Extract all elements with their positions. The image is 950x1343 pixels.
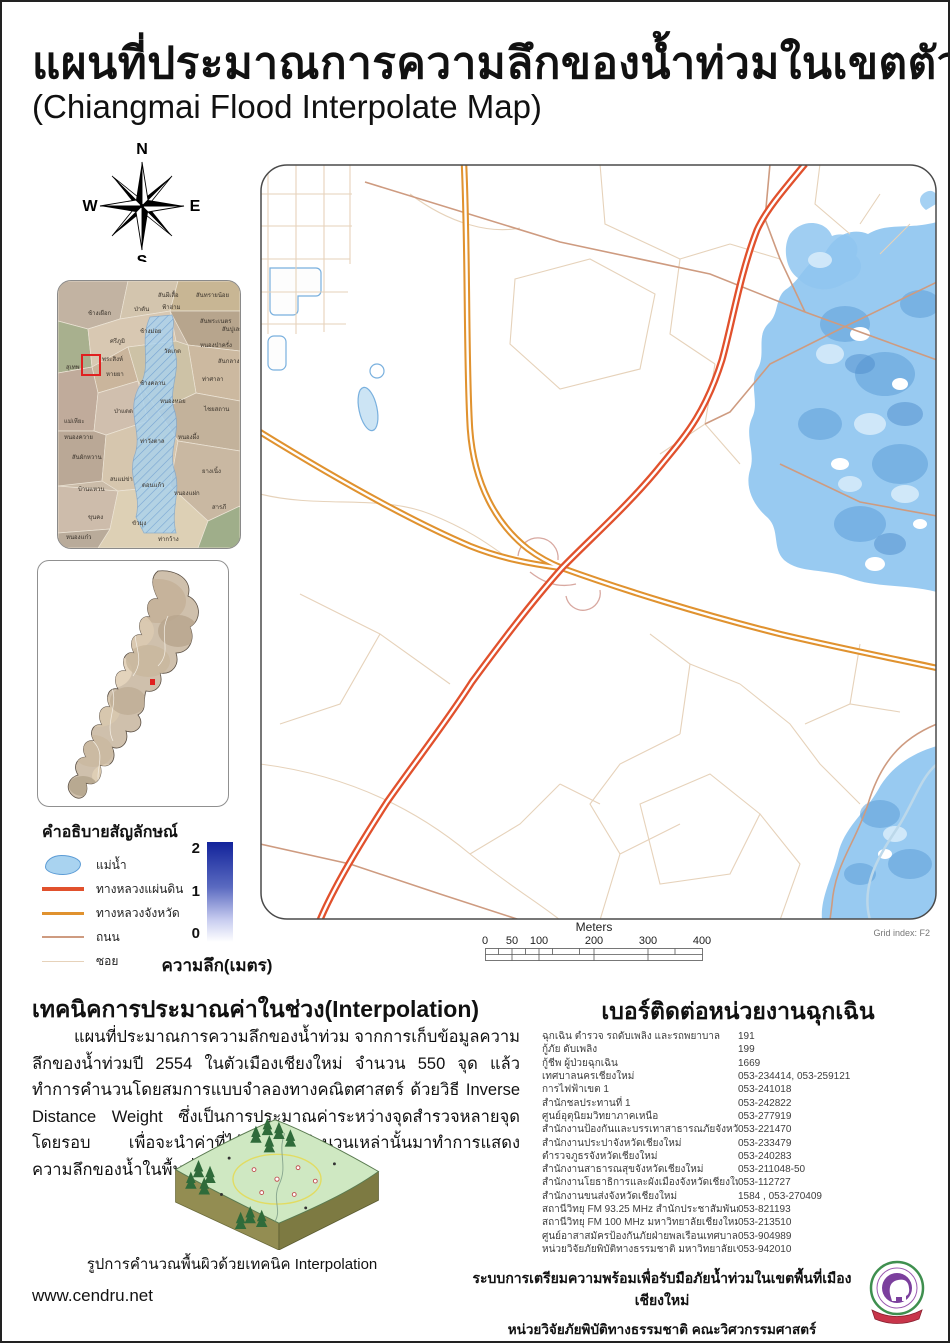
scale-tick-label: 200 bbox=[585, 935, 603, 947]
contact-row: สำนักชลประทานที่ 1053-242822 bbox=[542, 1096, 934, 1109]
alley-swatch-icon bbox=[42, 961, 84, 962]
contact-row: ศูนย์อาสาสมัครป้องกันภัยฝ่ายพลเรือนเทศบา… bbox=[542, 1229, 934, 1242]
contact-row: ฉุกเฉิน ตำรวจ รถดับเพลิง และรถพยาบาล191 bbox=[542, 1030, 934, 1043]
contact-phone: 053-211048-50 bbox=[738, 1164, 934, 1175]
district-label: ขัวมุง bbox=[132, 520, 146, 527]
terrain-caption: รูปการคำนวณพื้นผิวด้วยเทคนิค Interpolati… bbox=[57, 1252, 407, 1276]
road-swatch-icon bbox=[42, 936, 84, 938]
district-label: สันปูเลย bbox=[222, 326, 240, 333]
scale-tick-label: 100 bbox=[530, 935, 548, 947]
depth-ramp-caption: ความลึก(เมตร) bbox=[152, 952, 282, 979]
scale-tick-label: 400 bbox=[693, 935, 711, 947]
district-label: ช้างเผือก bbox=[88, 309, 112, 317]
contact-row: สำนักงานป้องกันและบรรเทาสาธารณภัยจังหวัด… bbox=[542, 1123, 934, 1136]
district-label: ไชยสถาน bbox=[203, 405, 229, 413]
contact-phone: 191 bbox=[738, 1031, 934, 1042]
scale-bar: Meters 050100200300400 bbox=[485, 920, 703, 967]
district-label: ท่ากว้าง bbox=[158, 536, 179, 543]
contacts-table: ฉุกเฉิน ตำรวจ รถดับเพลิง และรถพยาบาล191ก… bbox=[542, 1030, 934, 1256]
scale-tick-label: 300 bbox=[639, 935, 657, 947]
contact-row: สถานีวิทยุ FM 93.25 MHz สำนักประชาสัมพัน… bbox=[542, 1203, 934, 1216]
district-label: ท่าวังตาล bbox=[140, 438, 165, 445]
contact-row: สำนักงานขนส่งจังหวัดเชียงใหม่1584 , 053-… bbox=[542, 1190, 934, 1203]
contact-phone: 053-233479 bbox=[738, 1138, 934, 1149]
compass-s-label: S bbox=[137, 253, 148, 262]
ramp-tick: 2 bbox=[180, 840, 200, 857]
footer-organization: ระบบการเตรียมความพร้อมเพื่อรับมือภัยน้ำท… bbox=[472, 1268, 852, 1343]
footer-line1: ระบบการเตรียมความพร้อมเพื่อรับมือภัยน้ำท… bbox=[472, 1268, 852, 1312]
district-label: ช้างม่อย bbox=[140, 328, 161, 335]
legend-item: ทางหลวงจังหวัด bbox=[42, 901, 192, 925]
contact-phone: 053-213510 bbox=[738, 1217, 934, 1228]
contact-row: เทศบาลนครเชียงใหม่053-234414, 053-259121 bbox=[542, 1070, 934, 1083]
contact-row: ศูนย์อุตุนิยมวิทยาภาคเหนือ053-277919 bbox=[542, 1110, 934, 1123]
contact-phone: 053-240283 bbox=[738, 1151, 934, 1162]
district-label: ป่าตัน bbox=[134, 306, 149, 313]
website-link[interactable]: www.cendru.net bbox=[32, 1286, 153, 1306]
contact-agency: หน่วยวิจัยภัยพิบัติทางธรรมชาติ มหาวิทยาล… bbox=[542, 1242, 738, 1257]
depth-ramp-ticks: 210 bbox=[180, 840, 200, 942]
terrain-figure bbox=[152, 1116, 402, 1250]
contact-phone: 053-277919 bbox=[738, 1111, 934, 1122]
contact-row: กู้ชีพ ผู้ป่วยฉุกเฉิน1669 bbox=[542, 1057, 934, 1070]
contact-phone: 053-234414, 053-259121 bbox=[738, 1071, 934, 1082]
contact-phone: 1584 , 053-270409 bbox=[738, 1191, 934, 1202]
legend-item-label: ซอย bbox=[96, 952, 118, 971]
district-label: ศรีภูมิ bbox=[110, 337, 125, 345]
district-label: หนองแก๋ว bbox=[66, 534, 91, 541]
cendru-logo bbox=[862, 1260, 932, 1328]
city-location-marker bbox=[150, 679, 155, 685]
district-label: หนองแฝก bbox=[174, 490, 200, 497]
compass-rose-icon: N S E W bbox=[82, 138, 202, 262]
legend-item-label: ทางหลวงจังหวัด bbox=[96, 904, 180, 923]
district-label: หายยา bbox=[106, 372, 124, 378]
district-label: วัดเกต bbox=[164, 348, 181, 355]
district-label: สันทรายน้อย bbox=[196, 292, 229, 299]
district-label: หนองควาย bbox=[64, 435, 93, 441]
scale-tick-label: 50 bbox=[506, 935, 518, 947]
national-swatch-icon bbox=[42, 887, 84, 891]
cendru-logo-icon bbox=[862, 1260, 932, 1328]
contact-row: สำนักงานสาธารณสุขจังหวัดเชียงใหม่053-211… bbox=[542, 1163, 934, 1176]
page-subtitle: (Chiangmai Flood Interpolate Map) bbox=[32, 88, 542, 126]
district-label: แม่เหียะ bbox=[64, 417, 85, 425]
contact-phone: 053-242822 bbox=[738, 1098, 934, 1109]
interpolation-heading: เทคนิคการประมาณค่าในช่วง(Interpolation) bbox=[32, 992, 479, 1028]
inset-map-city: ช้างเผือกป่าตันสันผีเสื้อฟ้าฮ่ามสันทรายน… bbox=[57, 280, 241, 549]
district-label: ท่าศาลา bbox=[202, 376, 224, 383]
district-label: สันผักหวาน bbox=[72, 454, 102, 461]
district-label: สันกลาง bbox=[218, 358, 239, 365]
district-label: สบแม่ข่า bbox=[110, 476, 133, 483]
contact-row: ตำรวจภูธรจังหวัดเชียงใหม่053-240283 bbox=[542, 1150, 934, 1163]
district-label: ดอนแก้ว bbox=[142, 482, 164, 489]
legend-item: แม่น้ำ bbox=[42, 853, 192, 877]
district-label: สันพระเนตร bbox=[200, 318, 232, 325]
grid-index: Grid index: F2 bbox=[873, 928, 930, 938]
contact-phone: 053-942010 bbox=[738, 1244, 934, 1255]
contact-row: สถานีวิทยุ FM 100 MHz มหาวิทยาลัยเชียงให… bbox=[542, 1216, 934, 1229]
compass-n-label: N bbox=[136, 141, 148, 158]
district-label: สารภี bbox=[212, 503, 226, 511]
compass-rose: N S E W bbox=[82, 138, 202, 262]
contact-phone: 053-821193 bbox=[738, 1204, 934, 1215]
flood-map-poster: แผนที่ประมาณการความลึกของน้ำท่วมในเขตตัว… bbox=[0, 0, 950, 1343]
district-label: สุเทพ bbox=[66, 364, 80, 371]
district-label: ป่าแดด bbox=[114, 408, 133, 415]
legend-title: คำอธิบายสัญลักษณ์ bbox=[42, 820, 192, 845]
scale-bar-icon bbox=[485, 948, 703, 962]
legend-item-label: ทางหลวงแผ่นดิน bbox=[96, 880, 183, 899]
compass-e-label: E bbox=[190, 198, 201, 215]
contact-phone: 053-112727 bbox=[738, 1177, 934, 1188]
district-label: พระสิงห์ bbox=[102, 355, 123, 363]
contact-phone: 1669 bbox=[738, 1058, 934, 1069]
legend-item: ถนน bbox=[42, 925, 192, 949]
scale-tick-label: 0 bbox=[482, 935, 488, 947]
district-label: ช้างคลาน bbox=[140, 380, 166, 387]
contact-phone: 199 bbox=[738, 1044, 934, 1055]
contacts-heading: เบอร์ติดต่อหน่วยงานฉุกเฉิน bbox=[542, 994, 934, 1030]
district-label: หนองป่าครั่ง bbox=[200, 341, 232, 349]
district-label: หนองหอย bbox=[160, 399, 186, 405]
legend-item-label: แม่น้ำ bbox=[96, 856, 127, 875]
scale-bar-unit: Meters bbox=[485, 920, 703, 934]
legend: คำอธิบายสัญลักษณ์ แม่น้ำทางหลวงแผ่นดินทา… bbox=[42, 820, 192, 973]
terrain-block-icon bbox=[152, 1116, 402, 1250]
contact-row: สำนักงานโยธาธิการและผังเมืองจังหวัดเชียง… bbox=[542, 1176, 934, 1189]
footer-line2: หน่วยวิจัยภัยพิบัติทางธรรมชาติ คณะวิศวกร… bbox=[472, 1318, 852, 1343]
contact-phone: 053-221470 bbox=[738, 1124, 934, 1135]
contact-row: การไฟฟ้าเขต 1053-241018 bbox=[542, 1083, 934, 1096]
scale-bar-numbers: 050100200300400 bbox=[485, 935, 703, 948]
river-swatch-icon bbox=[42, 855, 84, 875]
contact-row: สำนักงานประปาจังหวัดเชียงใหม่053-233479 bbox=[542, 1136, 934, 1149]
legend-item-label: ถนน bbox=[96, 928, 120, 947]
contact-row: หน่วยวิจัยภัยพิบัติทางธรรมชาติ มหาวิทยาล… bbox=[542, 1243, 934, 1256]
provincial-swatch-icon bbox=[42, 912, 84, 915]
main-map bbox=[260, 164, 937, 920]
inset-map-province bbox=[37, 560, 229, 807]
depth-ramp-gradient bbox=[207, 842, 233, 942]
district-label: ขุนคง bbox=[88, 515, 103, 521]
contact-row: กู้ภัย ดับเพลิง199 bbox=[542, 1043, 934, 1056]
district-label: ฟ้าฮ่าม bbox=[162, 304, 181, 311]
legend-item: ทางหลวงแผ่นดิน bbox=[42, 877, 192, 901]
ramp-tick: 1 bbox=[180, 883, 200, 900]
compass-w-label: W bbox=[82, 198, 98, 215]
ramp-tick: 0 bbox=[180, 925, 200, 942]
contact-phone: 053-241018 bbox=[738, 1084, 934, 1095]
contact-phone: 053-904989 bbox=[738, 1231, 934, 1242]
district-label: บ้านแหวน bbox=[78, 486, 105, 493]
